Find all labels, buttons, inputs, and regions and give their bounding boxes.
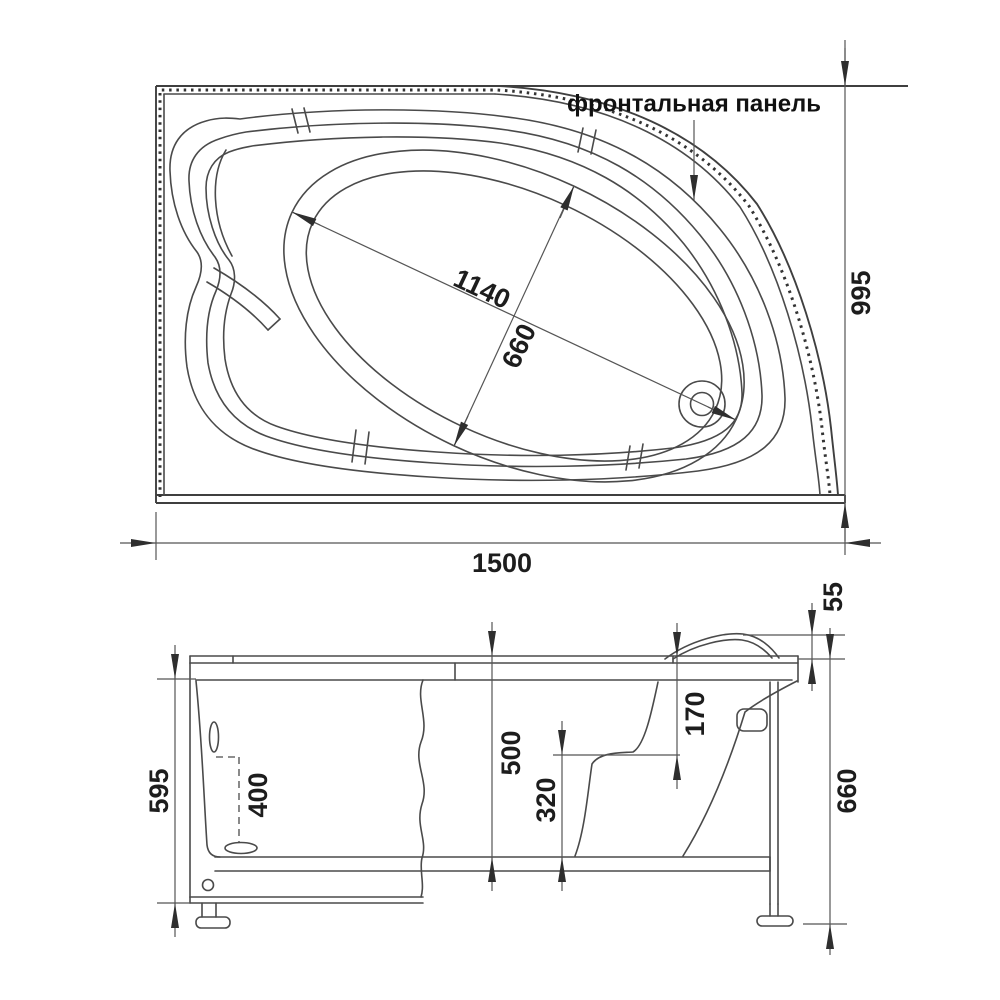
side-view: 400 595 500 320 <box>144 582 862 955</box>
frontal-panel-label: фронтальная панель <box>567 91 821 118</box>
dim-400-label: 400 <box>243 772 273 817</box>
dim-55-label: 55 <box>818 582 848 612</box>
side-skirt <box>190 663 423 928</box>
dim-500-label: 500 <box>496 730 526 775</box>
overflow-dashed-line: 400 <box>216 757 273 843</box>
side-rim <box>190 656 798 682</box>
overflow-hole <box>210 722 219 752</box>
dim-660-top-label: 660 <box>496 319 542 373</box>
dim-overall-height: 995 <box>845 40 876 555</box>
dim-1140-label: 1140 <box>449 263 515 315</box>
dim-660-side-label: 660 <box>832 768 862 813</box>
bathtub-drawing: 1140 660 фронтальная панель 1500 99 <box>0 0 1000 1000</box>
drain-hole-side <box>225 843 257 854</box>
frontal-panel-annotation: фронтальная панель <box>567 91 821 201</box>
break-line <box>419 680 424 897</box>
technical-drawing-page: 1140 660 фронтальная панель 1500 99 <box>0 0 1000 1000</box>
dim-1500-label: 1500 <box>472 548 532 578</box>
top-view: 1140 660 фронтальная панель 1500 99 <box>120 40 908 578</box>
dim-170-label: 170 <box>680 691 710 736</box>
dim-595-label: 595 <box>144 768 174 813</box>
dim-320-label: 320 <box>531 777 561 822</box>
dim-basin-width: 660 <box>454 186 574 446</box>
seat-band <box>214 268 280 319</box>
dim-body-height: 595 <box>144 645 196 937</box>
dim-seat-height: 320 <box>531 721 562 891</box>
seat-profile <box>575 682 658 856</box>
step-detail <box>737 709 767 731</box>
dim-rim-edge: 55 <box>743 582 848 691</box>
dim-995-label: 995 <box>846 270 876 315</box>
dim-overall-width: 1500 <box>120 512 881 578</box>
